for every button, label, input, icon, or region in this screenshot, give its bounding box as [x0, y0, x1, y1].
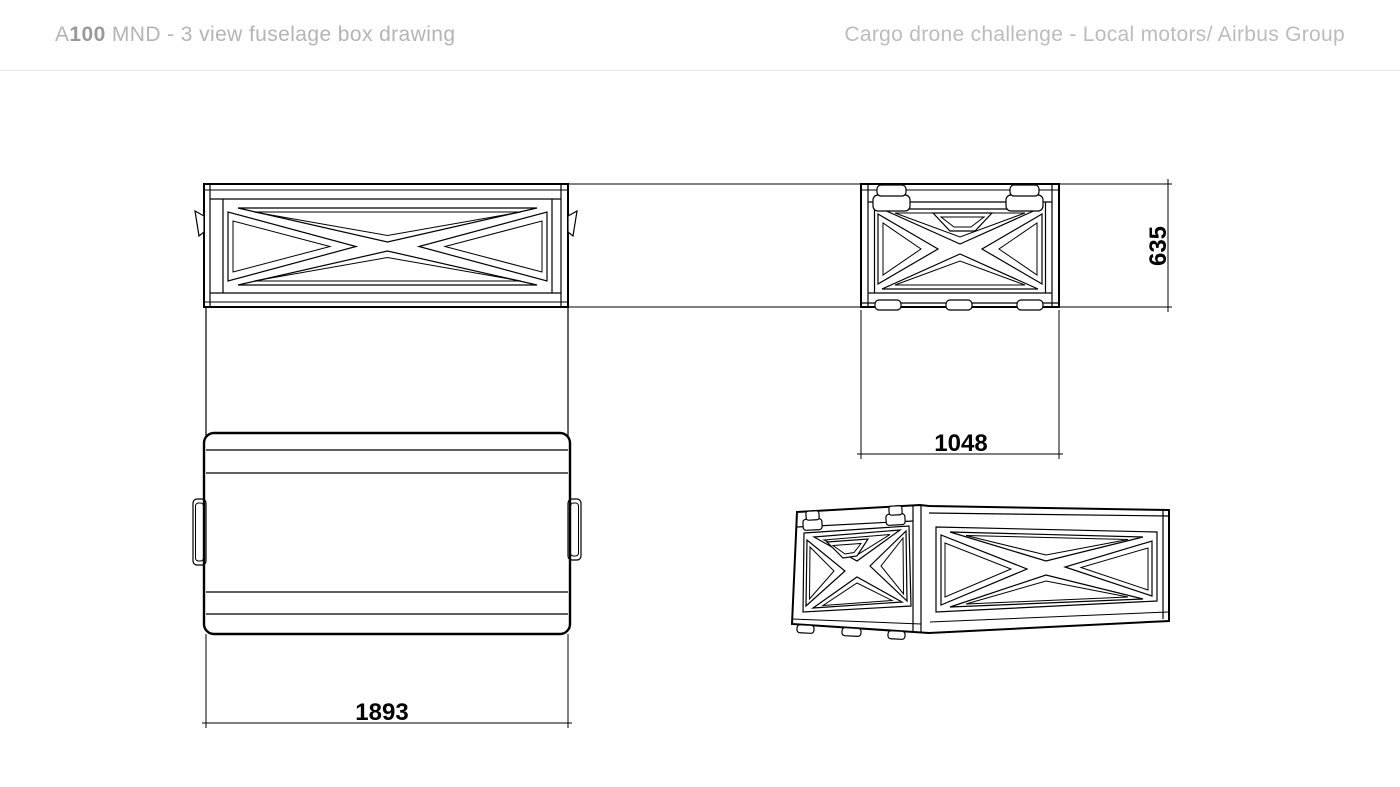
front-feet [875, 300, 1043, 310]
drawing-title: A100 MND - 3 view fuselage box drawing [55, 23, 455, 47]
drawing-title-rest: MND - 3 view fuselage box drawing [106, 23, 456, 46]
side-view [195, 184, 577, 307]
isometric-view [792, 505, 1169, 639]
side-view-truss [228, 208, 547, 285]
top-view [193, 307, 581, 634]
title-bar: A100 MND - 3 view fuselage box drawing C… [0, 0, 1400, 71]
front-latches [873, 185, 1043, 211]
drawing-title-prefix: A [55, 23, 69, 46]
dimension-width: 1048 [857, 430, 1063, 457]
isometric-front-face [792, 506, 921, 640]
front-view [861, 184, 1059, 310]
dimension-length-value: 1893 [355, 699, 408, 726]
dimension-height-value: 635 [1145, 226, 1172, 266]
projection-lines [204, 184, 1172, 728]
dimension-height: 635 [1145, 179, 1172, 312]
drawing-title-number: 100 [69, 23, 105, 46]
project-title: Cargo drone challenge - Local motors/ Ai… [844, 23, 1345, 47]
isometric-side-face [929, 511, 1169, 622]
left-hook [195, 211, 204, 236]
drawing-canvas: 635 1048 1893 [0, 72, 1400, 787]
dimension-length: 1893 [202, 699, 572, 726]
side-tabs [193, 499, 581, 565]
right-hook [568, 211, 577, 236]
dimension-width-value: 1048 [934, 430, 987, 457]
